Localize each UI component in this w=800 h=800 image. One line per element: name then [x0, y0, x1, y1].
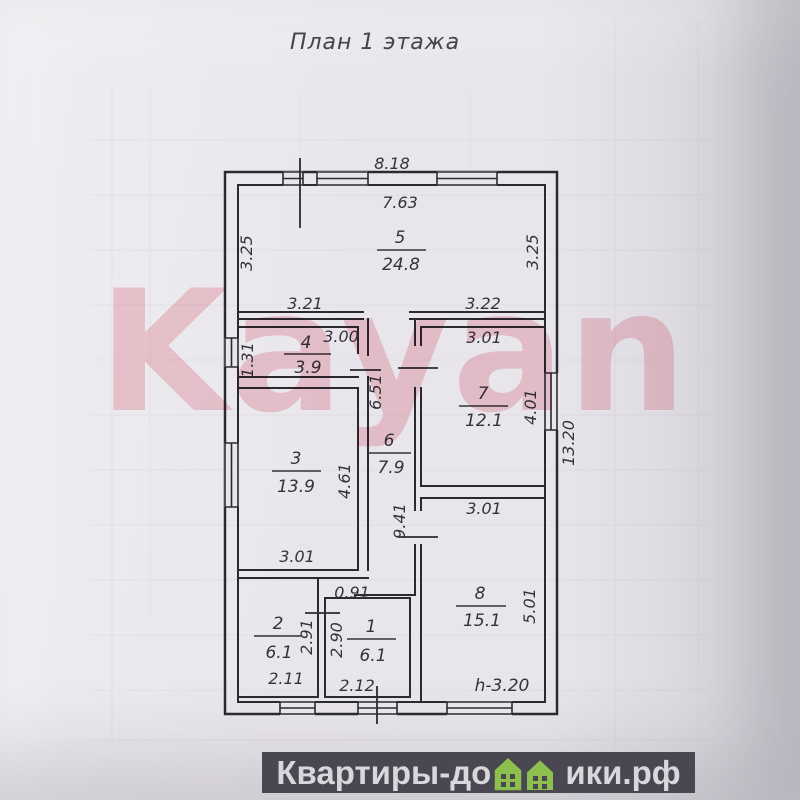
dim-r8-right: 5.01 [520, 588, 539, 624]
dim-r4-left-window: 1.31 [238, 342, 257, 378]
dim-right-overall: 13.20 [559, 420, 578, 466]
document-photo: План 1 этажа [0, 0, 800, 800]
room6-area: 7.9 [377, 458, 404, 478]
dim-r5-bottom-right: 3.22 [465, 294, 501, 313]
window-bottom-room8 [447, 701, 512, 716]
room5-number: 5 [395, 228, 406, 248]
floor-plan-svg: 5 24.8 4 3.9 3 13.9 6 7.9 7 12.1 8 15.1 … [0, 0, 800, 800]
dim-r5-left: 3.25 [237, 235, 256, 271]
footer-text-before: Квартиры-до [276, 756, 491, 789]
dim-passage-width: 0.91 [334, 583, 370, 602]
window-bottom-room2 [280, 701, 315, 716]
dim-r5-bottom-left: 3.21 [287, 294, 323, 313]
room8-number: 8 [475, 584, 486, 604]
room7-number: 7 [478, 384, 489, 404]
dim-corridor-upper: 6.51 [366, 374, 385, 410]
room8-area: 15.1 [463, 611, 501, 631]
footer-text-after: ики.рф [565, 756, 680, 789]
dim-r1-bottom: 2.12 [339, 676, 375, 695]
room1-number: 1 [366, 617, 377, 637]
window-top-2 [317, 171, 368, 186]
dim-r3-bottom: 3.01 [279, 547, 315, 566]
dim-r7-right: 4.01 [521, 389, 540, 425]
window-right-room7 [544, 373, 559, 430]
room7-area: 12.1 [465, 411, 503, 431]
dim-r2-bottom: 2.11 [268, 669, 304, 688]
dim-r8-top: 3.01 [466, 499, 502, 518]
dim-r2-right: 2.91 [297, 619, 316, 655]
bleed-through-grid [90, 20, 710, 748]
dim-corridor-lower: 9.41 [390, 503, 409, 539]
room1-area: 6.1 [359, 646, 386, 666]
page-title: План 1 этажа [0, 30, 750, 55]
window-top-3 [437, 171, 497, 186]
room4-area: 3.9 [294, 358, 321, 378]
dim-r3-right: 4.61 [335, 463, 354, 499]
room6-number: 6 [384, 431, 395, 451]
footer-logo-bar: Квартиры-до ики.рф [262, 752, 695, 793]
room5-area: 24.8 [382, 255, 420, 275]
dim-r5-right: 3.25 [523, 234, 542, 270]
green-houses-icon [492, 754, 564, 792]
ceiling-height-note: h-3.20 [475, 676, 530, 696]
dim-r4-top: 3.00 [323, 327, 359, 346]
room3-area: 13.9 [277, 477, 315, 497]
room2-area: 6.1 [265, 643, 292, 663]
dim-r1-left: 2.90 [327, 622, 346, 658]
room3-number: 3 [291, 449, 302, 469]
dimension-labels: 8.18 7.63 3.25 3.25 3.21 3.22 3.00 1.31 … [237, 154, 578, 696]
dim-r7-top: 3.01 [466, 328, 502, 347]
room4-number: 4 [301, 333, 312, 353]
window-left-room4 [224, 338, 239, 367]
dim-top-outer: 8.18 [374, 154, 410, 173]
window-left-room3 [224, 443, 239, 507]
room2-number: 2 [273, 614, 284, 634]
dim-top-inner: 7.63 [382, 193, 418, 212]
